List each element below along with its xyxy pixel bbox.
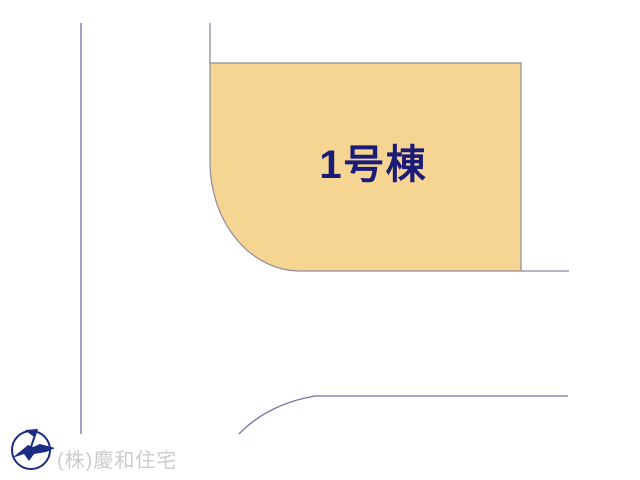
company-logo — [12, 429, 55, 469]
road-curve-bottom — [239, 396, 568, 434]
site-plan-drawing — [0, 0, 640, 480]
plot-1-shape — [210, 63, 521, 271]
site-plan: 1号棟 (株)慶和住宅 — [0, 0, 640, 480]
company-name: (株)慶和住宅 — [57, 444, 177, 473]
